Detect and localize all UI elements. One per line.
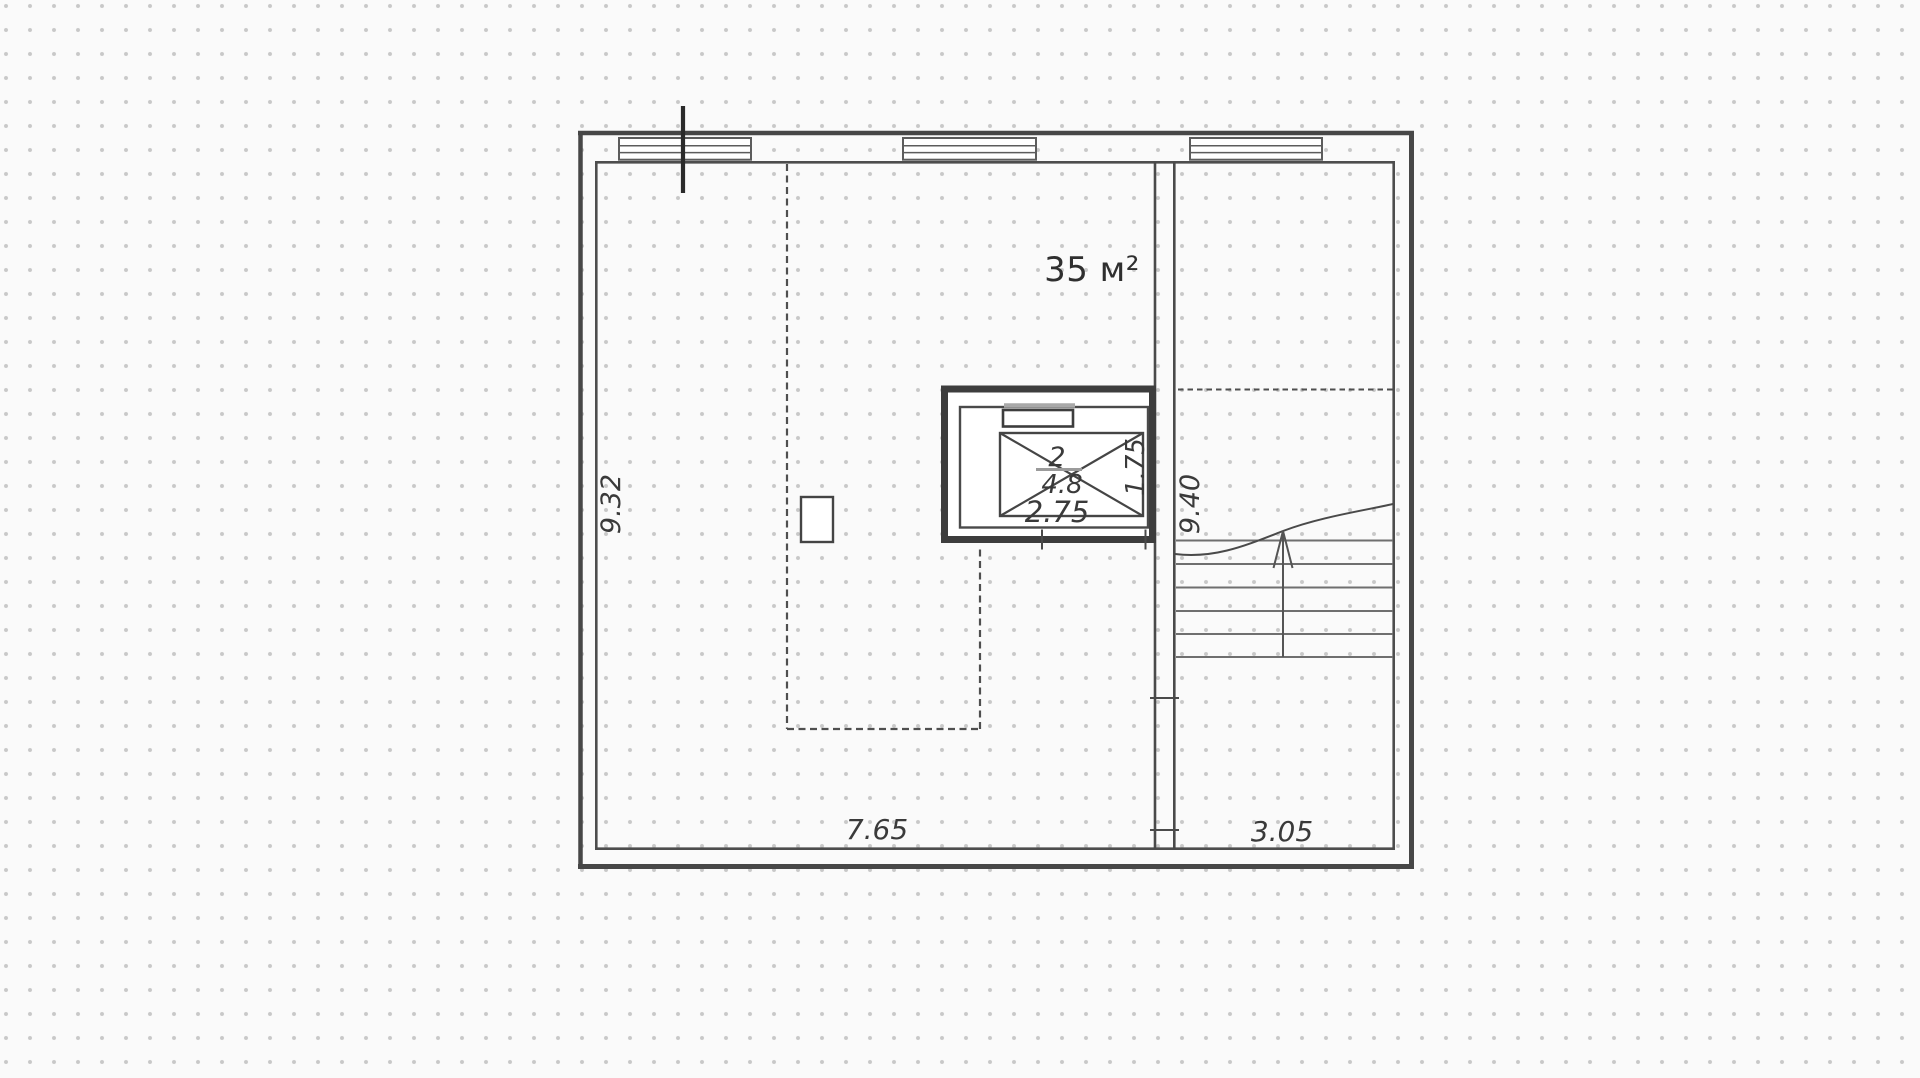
dim-bottom-right-width: 3.05 [1251, 815, 1313, 848]
stairs [1175, 504, 1393, 657]
floorplan-canvas[interactable]: 35 м² 9.32 9.40 7.65 3.05 2 4.8 2.75 1.7… [0, 0, 1920, 1078]
window-right [1190, 138, 1322, 160]
windows [619, 138, 1322, 160]
stair-treads [1176, 541, 1393, 658]
elevator-depth: 1.75 [1121, 438, 1151, 496]
elevator-width: 2.75 [1025, 495, 1090, 529]
floorplan-drawing: 35 м² 9.32 9.40 7.65 3.05 2 4.8 2.75 1.7… [0, 0, 1920, 1078]
column-rect [801, 497, 833, 542]
dim-left-height: 9.32 [596, 474, 627, 534]
stair-walk-line-arrow [1274, 531, 1293, 657]
dim-bottom-main-width: 7.65 [846, 813, 908, 846]
room-area-label: 35 м² [1044, 250, 1140, 290]
window-middle [903, 138, 1036, 160]
dim-stairwell-height: 9.40 [1175, 474, 1206, 534]
elevator-door [1003, 410, 1073, 427]
